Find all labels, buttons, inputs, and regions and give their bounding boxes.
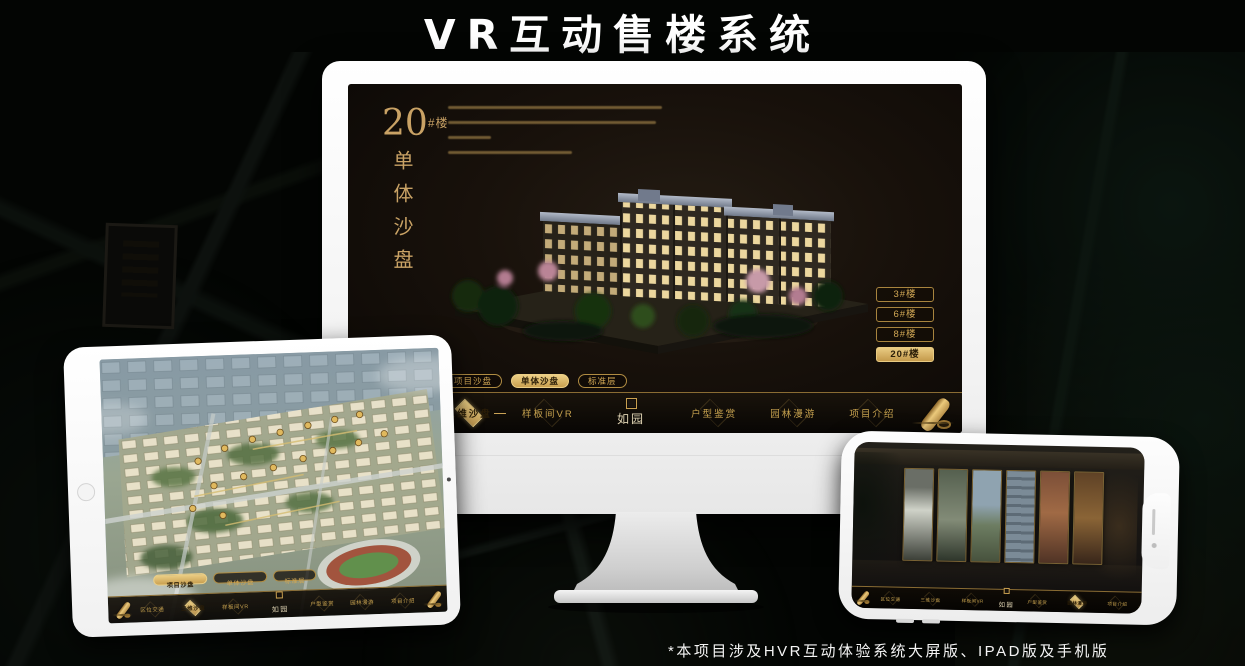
tablet-nav-item-project-intro[interactable]: 项目介绍 [382, 590, 423, 609]
brand-logo: 如园 [587, 398, 674, 428]
phone-volume-button[interactable] [896, 619, 914, 623]
tablet-subtab-standard-floor[interactable]: 标准层 [273, 569, 316, 581]
gallery-panel-6[interactable] [1072, 471, 1104, 565]
tablet-camera-dot [447, 477, 451, 481]
tablet-screen: 项目沙盘 单体沙盘 标准层 区位交通 三维沙盘 样板间VR 如园 户型鉴赏 园林… [99, 348, 447, 624]
tablet-scroll-icon-right[interactable] [423, 590, 444, 609]
tablet-subtab-single-sandbox[interactable]: 单体沙盘 [213, 571, 267, 584]
footnote-text: *本项目涉及HVR互动体验系统大屏版、IPAD版及手机版 [668, 640, 1109, 661]
monitor-subtabs: 项目沙盘 单体沙盘 标准层 [444, 374, 627, 388]
phone-frame: 区位交通 三维沙盘 样板间VR 如园 户型鉴赏 园林漫游 项目介绍 [838, 430, 1180, 625]
nav-item-garden-tour[interactable]: 园林漫游 [754, 406, 833, 420]
phone-navbar: 区位交通 三维沙盘 样板间VR 如园 户型鉴赏 园林漫游 项目介绍 [851, 586, 1141, 614]
gallery-panel-2[interactable] [936, 469, 968, 563]
tablet-frame: 项目沙盘 单体沙盘 标准层 区位交通 三维沙盘 样板间VR 如园 户型鉴赏 园林… [63, 334, 461, 637]
page-title: VR互动售楼系统 [0, 1, 1245, 61]
background-plaque [102, 223, 178, 329]
subtab-single-sandbox[interactable]: 单体沙盘 [511, 374, 569, 388]
phone-nav-item-project-intro[interactable]: 项目介绍 [1097, 593, 1137, 612]
phone-nav-item-showroom-vr[interactable]: 样板间VR [950, 590, 995, 609]
building-button-3[interactable]: 3#楼 [876, 287, 934, 302]
phone-nav-item-garden-tour[interactable]: 园林漫游 [1057, 593, 1097, 612]
phone-nav-item-3d-sandbox[interactable]: 三维沙盘 [910, 589, 950, 608]
tablet-nav-item-garden-tour[interactable]: 园林漫游 [342, 592, 383, 611]
tablet-subtab-project-sandbox[interactable]: 项目沙盘 [153, 573, 207, 586]
phone-screen: 区位交通 三维沙盘 样板间VR 如园 户型鉴赏 园林漫游 项目介绍 [851, 442, 1144, 614]
gallery-panel-4[interactable] [1004, 470, 1036, 564]
building-render [443, 146, 873, 376]
nav-item-project-intro[interactable]: 项目介绍 [833, 406, 912, 420]
tablet-home-button[interactable] [77, 483, 96, 502]
gallery-panels [902, 468, 1104, 565]
building-button-group: 3#楼 6#楼 8#楼 20#楼 [876, 287, 934, 367]
subtab-standard-floor[interactable]: 标准层 [578, 374, 627, 388]
scroll-icon[interactable] [912, 396, 954, 430]
aerial-masterplan-render [99, 348, 447, 624]
phone-notch [1141, 493, 1171, 570]
nav-item-floorplan[interactable]: 户型鉴赏 [675, 406, 754, 420]
monitor-stand [538, 512, 773, 614]
tablet-nav-item-location-traffic[interactable]: 区位交通 [132, 599, 173, 618]
camera-dot-icon [1152, 543, 1157, 548]
gallery-panel-3[interactable] [970, 469, 1002, 563]
earpiece-slit-icon [1152, 509, 1156, 535]
phone-seal-icon [1003, 588, 1009, 594]
phone-brand-logo: 如园 [995, 588, 1018, 613]
building-button-20[interactable]: 20#楼 [876, 347, 934, 362]
heading-suffix: #楼 [428, 116, 449, 130]
phone-nav-item-location-traffic[interactable]: 区位交通 [870, 589, 910, 608]
phone-scroll-icon-left[interactable] [854, 590, 870, 605]
phone-scroll-icon-right[interactable] [1137, 596, 1145, 611]
gallery-panel-5[interactable] [1038, 471, 1070, 565]
building-button-6[interactable]: 6#楼 [876, 307, 934, 322]
heading-number: 20 [382, 103, 428, 144]
tablet-nav-item-showroom-vr[interactable]: 样板间VR [213, 596, 258, 616]
screen-heading: 20#楼 单体沙盘 [382, 106, 449, 310]
seal-icon [626, 398, 637, 409]
stage: VR互动售楼系统 20#楼 单体沙盘 [0, 0, 1245, 666]
nav-item-showroom-vr[interactable]: 样板间VR [508, 406, 587, 420]
gallery-panel-1[interactable] [902, 468, 934, 562]
tablet-brand-logo: 如园 [257, 591, 302, 619]
tablet-nav-item-floorplan[interactable]: 户型鉴赏 [302, 593, 343, 612]
tablet-nav-item-3d-sandbox[interactable]: 三维沙盘 [172, 598, 213, 617]
tablet-scroll-icon-left[interactable] [112, 601, 133, 620]
subtab-project-sandbox[interactable]: 项目沙盘 [444, 374, 502, 388]
phone-volume-button-2[interactable] [922, 619, 940, 623]
tablet-seal-icon [276, 591, 283, 598]
phone-nav-item-floorplan[interactable]: 户型鉴赏 [1017, 592, 1057, 611]
building-button-8[interactable]: 8#楼 [876, 327, 934, 342]
heading-subtitle: 单体沙盘 [388, 150, 417, 310]
